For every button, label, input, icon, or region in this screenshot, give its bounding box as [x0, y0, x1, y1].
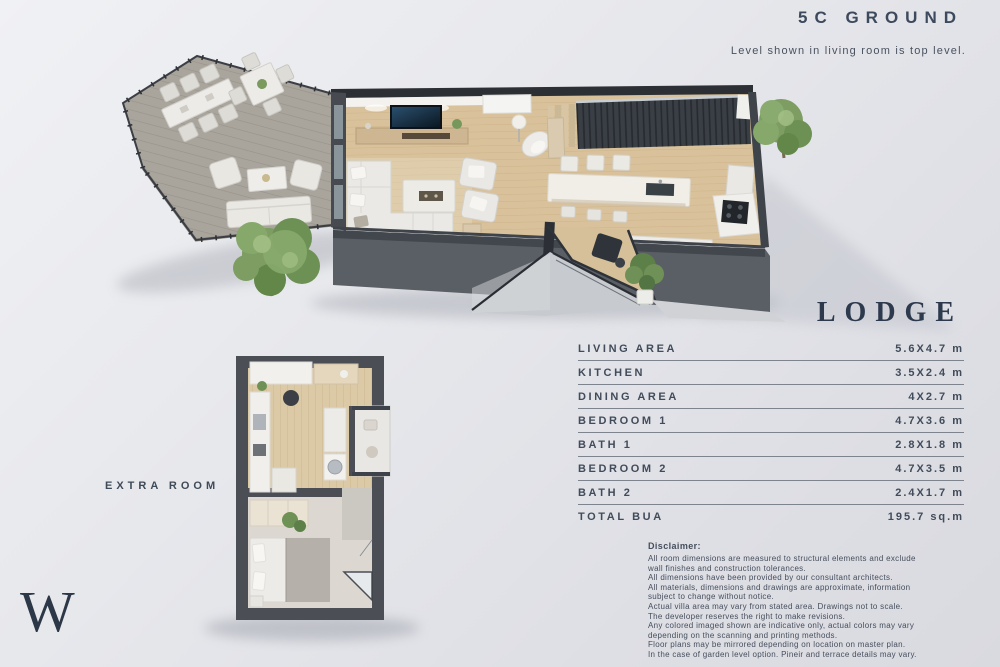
plant-pot: [637, 290, 653, 304]
room-label: LIVING AREA: [578, 343, 677, 355]
disclaimer-heading: Disclaimer:: [648, 541, 974, 551]
main-unit: [331, 85, 786, 322]
disclaimer-line: Any colored imaged shown are indicative …: [648, 621, 974, 631]
table-row: BEDROOM 1 4.7X3.6 m: [578, 409, 964, 433]
wardrobe: [324, 408, 346, 452]
disclaimer-line: Floor plans may be mirrored depending on…: [648, 640, 974, 650]
floor-lamp: [512, 115, 526, 129]
desk: [314, 364, 358, 384]
brand-logo: W: [20, 583, 75, 641]
table-row: LIVING AREA 5.6X4.7 m: [578, 337, 964, 361]
deck-terrace: [123, 41, 333, 240]
stove: [721, 200, 749, 224]
room-size: 4.7X3.6 m: [895, 415, 964, 427]
shelf: [547, 118, 564, 159]
room-label: BEDROOM 1: [578, 415, 668, 427]
room-size: 4X2.7 m: [908, 391, 964, 403]
room-label: BATH 2: [578, 487, 633, 499]
room-size: 5.6X4.7 m: [895, 343, 964, 355]
sliding-glass-wall: [331, 92, 346, 231]
coffee-table: [403, 180, 455, 212]
room-size: 3.5X2.4 m: [895, 367, 964, 379]
room-size: 4.7X3.5 m: [895, 463, 964, 475]
room-size: 195.7 sq.m: [888, 511, 964, 523]
staircase: [548, 96, 751, 149]
room-size: 2.8X1.8 m: [895, 439, 964, 451]
disclaimer-line: subject to change without notice.: [648, 592, 974, 602]
table-row: DINING AREA 4X2.7 m: [578, 385, 964, 409]
extra-room-label: EXTRA ROOM: [105, 480, 219, 492]
disclaimer-line: All room dimensions are measured to stru…: [648, 554, 974, 564]
extra-room-plan: [236, 356, 390, 620]
floor-plan-sheet: 5C GROUND Level shown in living room is …: [0, 0, 1000, 667]
tree-left: [233, 218, 320, 296]
room-label: DINING AREA: [578, 391, 679, 403]
room-label: BEDROOM 2: [578, 463, 668, 475]
office-chair: [283, 390, 299, 406]
balcony-niche: [349, 406, 390, 476]
bed: [250, 538, 330, 602]
disclaimer-line: All materials, dimensions and drawings a…: [648, 583, 974, 593]
table-row: BEDROOM 2 4.7X3.5 m: [578, 457, 964, 481]
table-row: BATH 2 2.4X1.7 m: [578, 481, 964, 505]
disclaimer-line: The developer reserves the right to make…: [648, 612, 974, 622]
level-note: Level shown in living room is top level.: [731, 45, 966, 57]
disclaimer-line: depending on the scanning and printing m…: [648, 631, 974, 641]
dimensions-table: LIVING AREA 5.6X4.7 m KITCHEN 3.5X2.4 m …: [578, 337, 964, 528]
disclaimer-line: All dimensions have been provided by our…: [648, 573, 974, 583]
disclaimer-line: Actual villa area may vary from stated a…: [648, 602, 974, 612]
skylight-box: [483, 95, 531, 114]
tree-right: [753, 99, 812, 158]
room-size: 2.4X1.7 m: [895, 487, 964, 499]
room-label: BATH 1: [578, 439, 633, 451]
room-label: TOTAL BUA: [578, 511, 664, 523]
disclaimer: Disclaimer: All room dimensions are meas…: [648, 541, 974, 660]
room-label: KITCHEN: [578, 367, 645, 379]
table-row: BATH 1 2.8X1.8 m: [578, 433, 964, 457]
disclaimer-line: In the case of garden level option. Pine…: [648, 650, 974, 660]
table-row: KITCHEN 3.5X2.4 m: [578, 361, 964, 385]
unit-type-title: LODGE: [817, 297, 963, 329]
disclaimer-line: wall finishes and construction tolerance…: [648, 564, 974, 574]
page-title: 5C GROUND: [798, 8, 963, 28]
plant-icon: [452, 119, 462, 129]
table-row-total: TOTAL BUA 195.7 sq.m: [578, 505, 964, 528]
